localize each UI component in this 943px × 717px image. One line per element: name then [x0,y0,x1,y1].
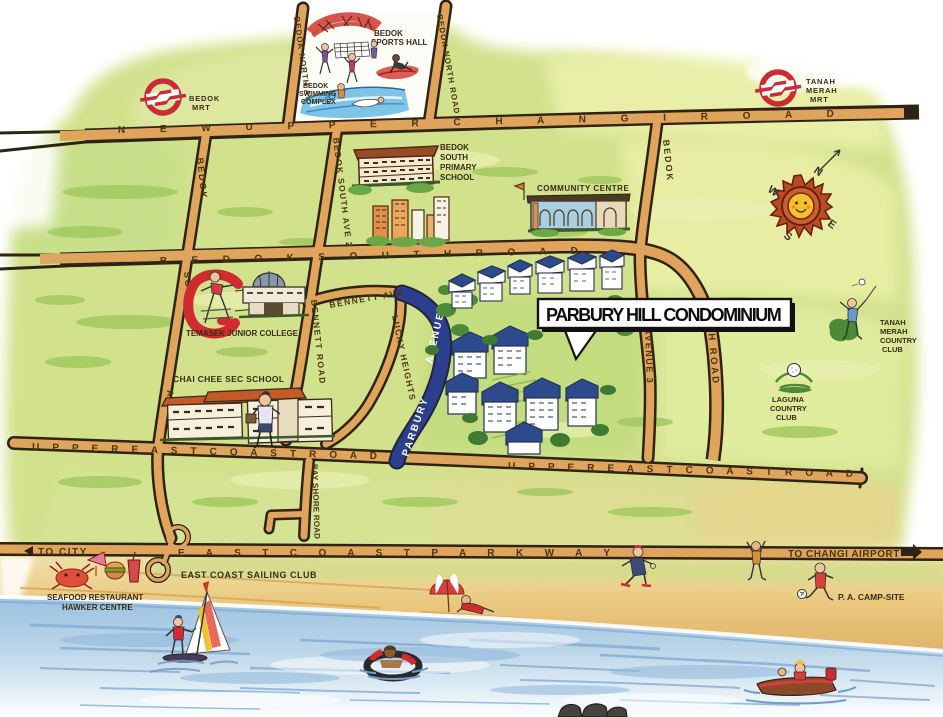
svg-text:COUNTRY: COUNTRY [880,336,917,345]
svg-text:SCHOOL: SCHOOL [440,173,474,182]
svg-text:PRIMARY: PRIMARY [440,163,477,172]
svg-text:BEDOK: BEDOK [189,94,220,103]
svg-text:LAGUNA: LAGUNA [772,395,805,404]
svg-text:CHAI CHEE SEC SCHOOL: CHAI CHEE SEC SCHOOL [173,374,284,384]
svg-text:MRT: MRT [192,103,211,112]
svg-text:SPORTS HALL: SPORTS HALL [371,38,428,47]
svg-text:AVENUE 3: AVENUE 3 [643,328,655,385]
svg-text:TEMASEK JUNIOR COLLEGE: TEMASEK JUNIOR COLLEGE [186,329,299,338]
svg-text:MRT: MRT [810,95,829,104]
svg-text:HAWKER CENTRE: HAWKER CENTRE [62,603,133,612]
svg-text:SEAFOOD RESTAURANT: SEAFOOD RESTAURANT [47,593,143,602]
svg-text:MERAH: MERAH [806,86,838,95]
svg-text:COMPLEX: COMPLEX [301,99,336,106]
svg-text:TANAH: TANAH [806,77,836,86]
svg-text:TO CHANGI AIRPORT: TO CHANGI AIRPORT [788,549,900,560]
svg-text:COUNTRY: COUNTRY [770,404,807,413]
svg-text:BEDOK: BEDOK [303,83,328,90]
svg-text:P. A. CAMP-SITE: P. A. CAMP-SITE [838,592,905,602]
svg-text:CLUB: CLUB [882,345,903,354]
svg-text:EAST COAST SAILING CLUB: EAST COAST SAILING CLUB [181,570,317,580]
svg-text:PARBURY HILL CONDOMINIUM: PARBURY HILL CONDOMINIUM [546,305,782,325]
svg-text:SWIMMING: SWIMMING [299,91,337,98]
svg-text:SOUTH: SOUTH [440,153,468,162]
svg-text:BEDOK: BEDOK [374,29,403,38]
svg-text:TANAH: TANAH [880,318,906,327]
svg-text:MERAH: MERAH [880,327,908,336]
svg-text:COMMUNITY CENTRE: COMMUNITY CENTRE [537,184,629,193]
svg-text:TO CITY: TO CITY [38,547,88,558]
svg-text:CLUB: CLUB [776,413,797,422]
svg-text:BEDOK: BEDOK [440,143,469,152]
